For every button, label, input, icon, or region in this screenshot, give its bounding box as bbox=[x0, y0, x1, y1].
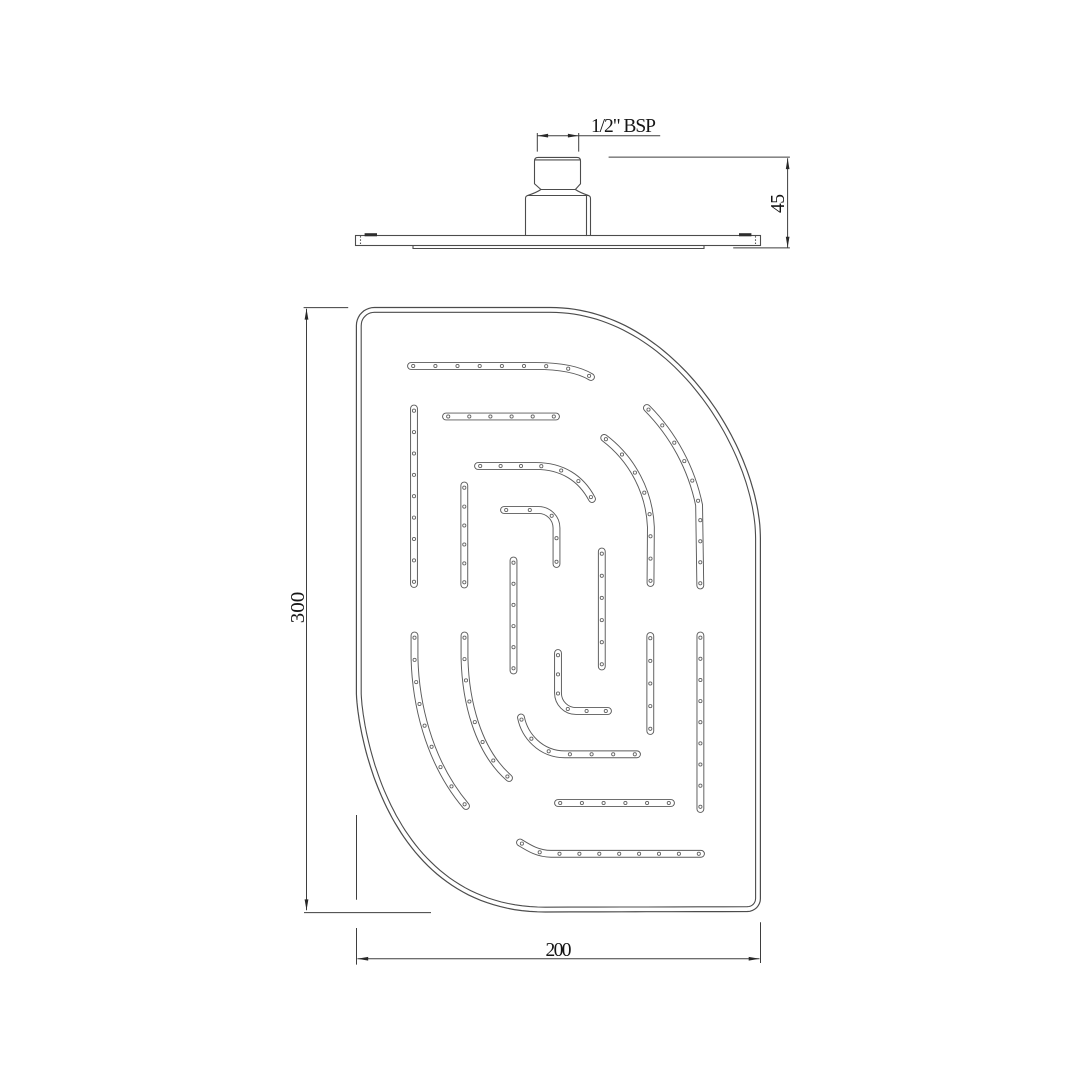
svg-text:1/2" BSP: 1/2" BSP bbox=[591, 116, 656, 137]
svg-text:200: 200 bbox=[546, 940, 572, 961]
svg-text:45: 45 bbox=[768, 194, 789, 213]
svg-text:300: 300 bbox=[288, 592, 309, 624]
